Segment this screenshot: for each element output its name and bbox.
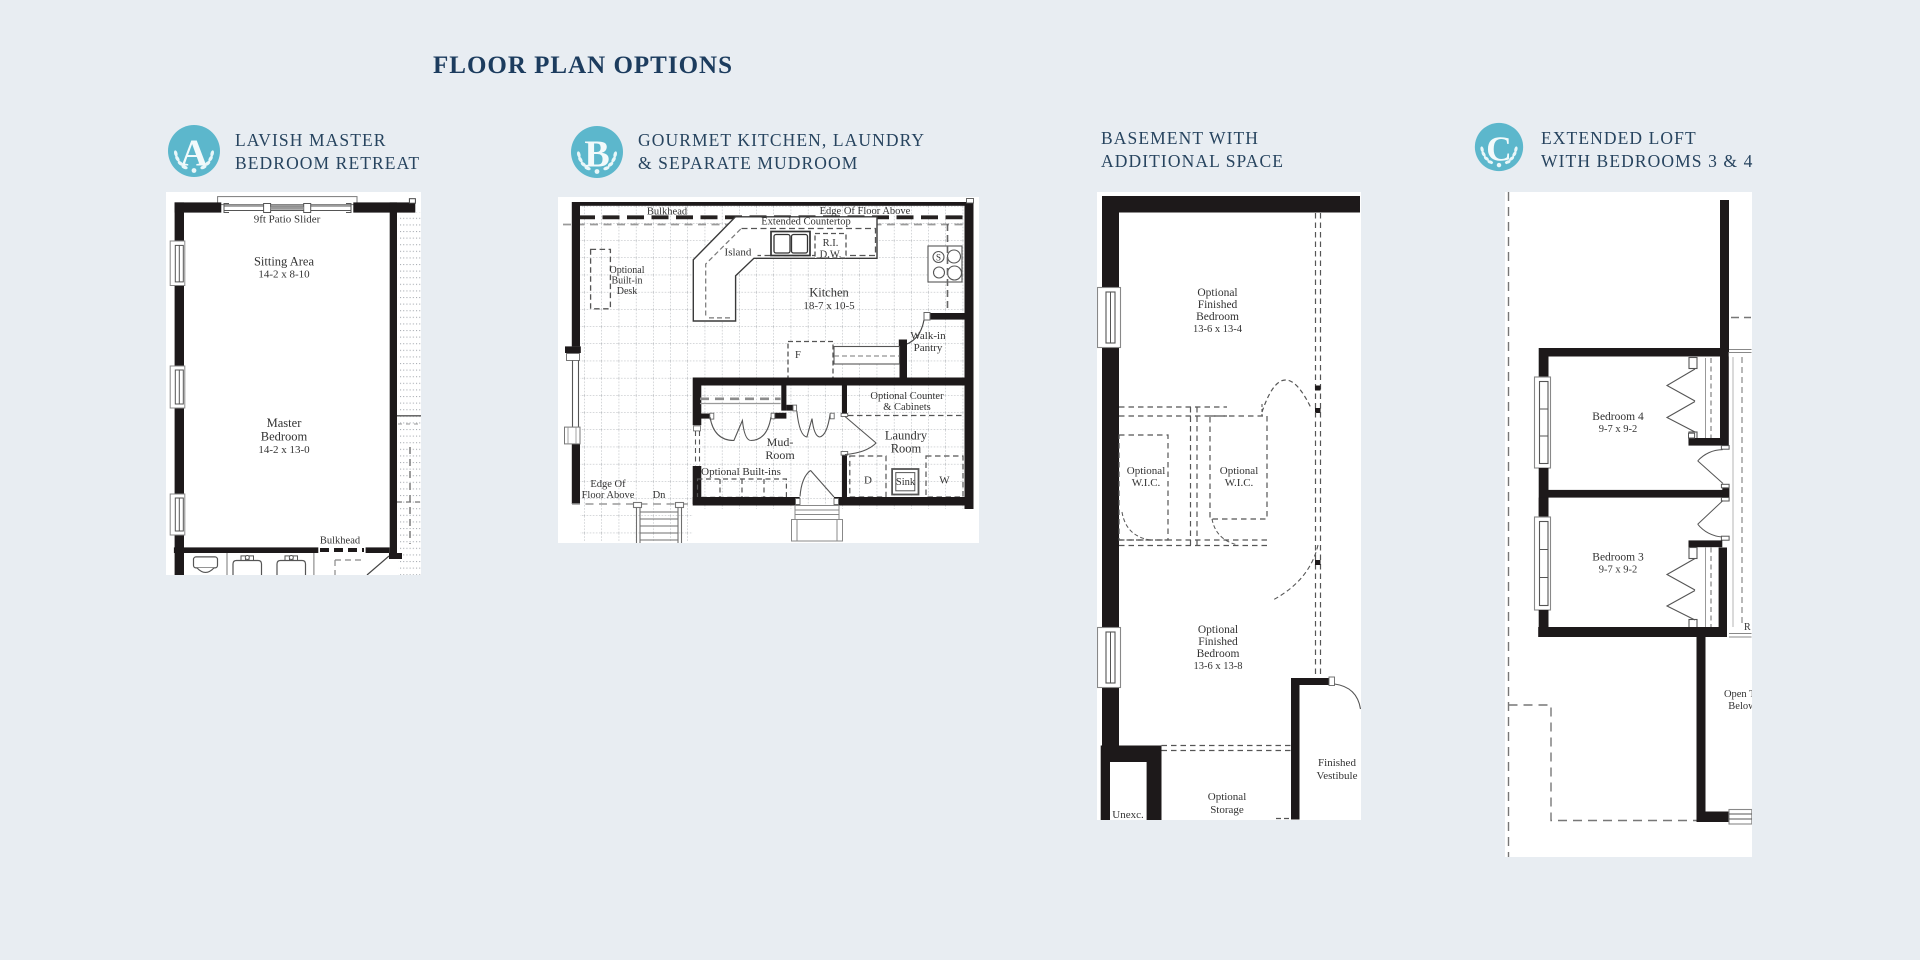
svg-text:Bedroom 4: Bedroom 4 xyxy=(1592,411,1644,423)
svg-text:Open To: Open To xyxy=(1724,689,1752,700)
svg-text:Sink: Sink xyxy=(896,477,916,488)
svg-text:14-2 x 8-10: 14-2 x 8-10 xyxy=(258,269,310,281)
svg-text:Room: Room xyxy=(765,448,795,462)
svg-text:Master: Master xyxy=(267,416,303,430)
svg-text:9-7 x 9-2: 9-7 x 9-2 xyxy=(1599,565,1638,576)
svg-text:Desk: Desk xyxy=(617,286,638,297)
svg-text:Mud-: Mud- xyxy=(767,435,794,449)
svg-text:Floor Above: Floor Above xyxy=(582,490,635,501)
svg-text:Finished: Finished xyxy=(1318,757,1356,769)
svg-text:Vestibule: Vestibule xyxy=(1317,770,1358,782)
svg-text:W.I.C.: W.I.C. xyxy=(1132,477,1161,489)
svg-text:Finished: Finished xyxy=(1198,636,1238,648)
svg-text:Sitting Area: Sitting Area xyxy=(254,255,315,269)
svg-text:Optional Built-ins: Optional Built-ins xyxy=(701,466,781,478)
svg-text:Bulkhead: Bulkhead xyxy=(647,207,688,218)
svg-text:& Cabinets: & Cabinets xyxy=(883,402,931,413)
svg-text:Optional: Optional xyxy=(1220,465,1259,477)
svg-text:14-2 x 13-0: 14-2 x 13-0 xyxy=(258,444,310,456)
svg-text:W: W xyxy=(939,475,950,487)
svg-text:Finished: Finished xyxy=(1198,299,1238,311)
svg-text:Optional: Optional xyxy=(1208,791,1247,803)
svg-text:Pantry: Pantry xyxy=(914,342,943,354)
svg-text:9-7 x 9-2: 9-7 x 9-2 xyxy=(1599,424,1638,435)
svg-text:Extended Countertop: Extended Countertop xyxy=(761,217,851,228)
svg-text:Kitchen: Kitchen xyxy=(809,286,849,300)
svg-text:Unexc.: Unexc. xyxy=(1112,809,1144,820)
svg-text:Bulkhead: Bulkhead xyxy=(320,536,361,547)
svg-text:13-6 x 13-4: 13-6 x 13-4 xyxy=(1193,324,1243,335)
svg-text:R: R xyxy=(1744,622,1751,633)
svg-text:Bedroom: Bedroom xyxy=(1197,648,1240,660)
svg-text:13-6 x 13-8: 13-6 x 13-8 xyxy=(1194,661,1243,672)
svg-text:F: F xyxy=(795,350,801,361)
svg-text:Bedroom: Bedroom xyxy=(1196,311,1239,323)
svg-text:D.W.: D.W. xyxy=(820,250,842,261)
svg-text:Laundry: Laundry xyxy=(885,429,928,443)
svg-text:Optional Counter: Optional Counter xyxy=(870,391,944,402)
svg-text:Below: Below xyxy=(1728,701,1752,712)
svg-text:Edge Of: Edge Of xyxy=(590,479,626,490)
svg-text:Optional: Optional xyxy=(1198,624,1238,636)
svg-text:Storage: Storage xyxy=(1210,804,1244,816)
svg-text:Bedroom: Bedroom xyxy=(261,430,308,444)
svg-text:Bedroom 3: Bedroom 3 xyxy=(1592,552,1644,564)
svg-text:Optional: Optional xyxy=(610,265,645,276)
svg-text:Optional: Optional xyxy=(1197,287,1237,299)
svg-text:R.I.: R.I. xyxy=(823,238,839,249)
svg-text:Island: Island xyxy=(725,247,752,259)
svg-text:Dn: Dn xyxy=(653,490,667,501)
svg-text:Built-in: Built-in xyxy=(611,276,642,287)
svg-text:Room: Room xyxy=(891,442,922,456)
svg-text:9ft Patio Slider: 9ft Patio Slider xyxy=(254,214,321,226)
svg-text:Edge Of Floor Above: Edge Of Floor Above xyxy=(820,206,911,217)
svg-text:W.I.C.: W.I.C. xyxy=(1225,477,1254,489)
svg-text:Walk-in: Walk-in xyxy=(910,330,946,342)
svg-text:D: D xyxy=(864,475,872,487)
svg-text:Optional: Optional xyxy=(1127,465,1166,477)
svg-text:S: S xyxy=(936,253,941,263)
svg-text:18-7 x 10-5: 18-7 x 10-5 xyxy=(803,300,855,312)
